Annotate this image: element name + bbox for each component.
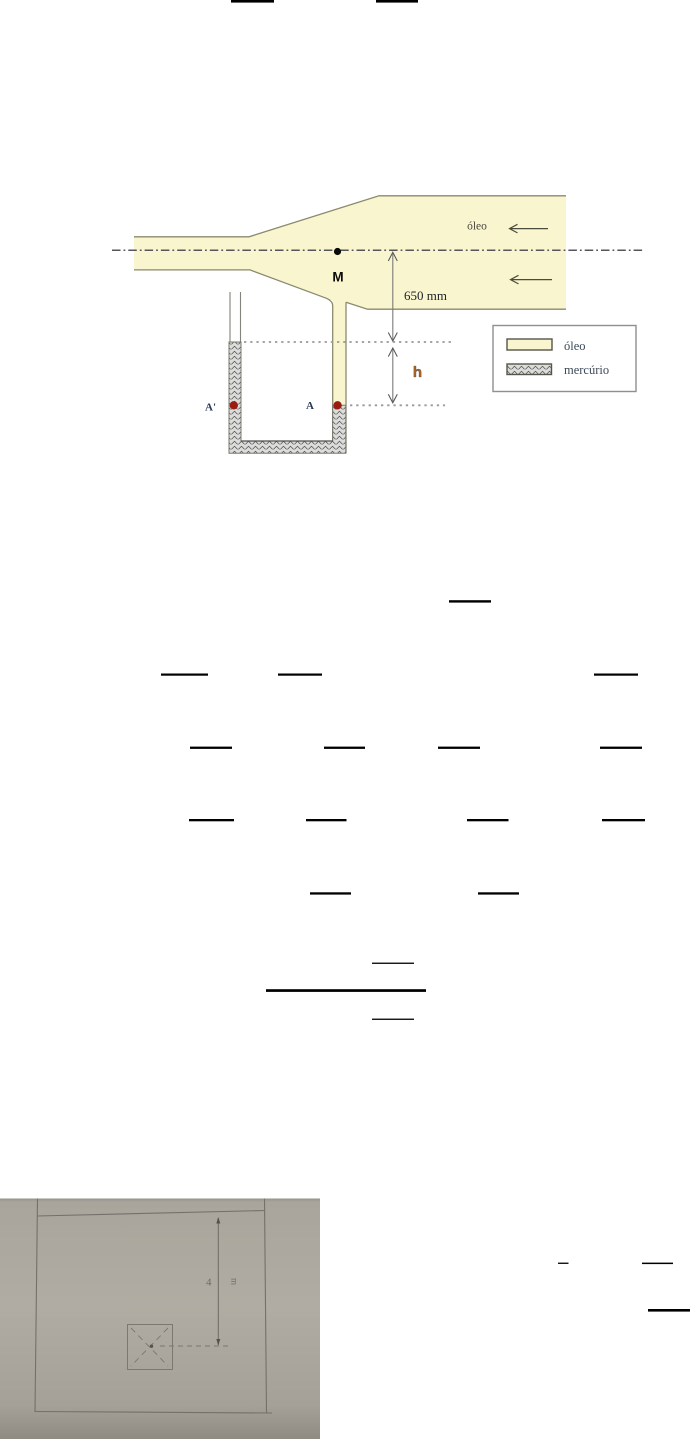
svg-text:650 mm: 650 mm xyxy=(404,288,447,303)
svg-text:h: h xyxy=(413,364,422,381)
svg-text:mercúrio: mercúrio xyxy=(564,363,609,377)
svg-text:M: M xyxy=(332,270,343,285)
svg-text:m: m xyxy=(230,1278,240,1285)
svg-text:óleo: óleo xyxy=(564,339,586,353)
svg-text:A': A' xyxy=(205,402,216,414)
svg-text:A: A xyxy=(306,400,314,412)
svg-text:4: 4 xyxy=(206,1277,212,1289)
svg-text:óleo: óleo xyxy=(467,221,487,233)
